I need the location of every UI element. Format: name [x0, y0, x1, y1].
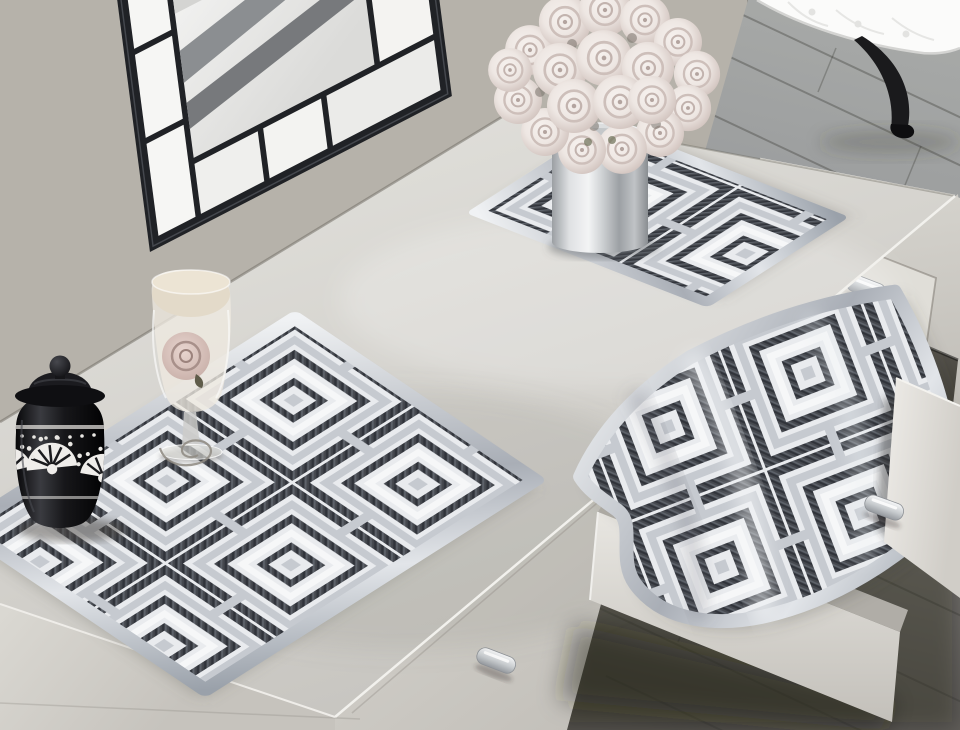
jar-knob: [50, 356, 71, 377]
shadow: [820, 130, 960, 154]
photo-scene: [0, 0, 960, 730]
